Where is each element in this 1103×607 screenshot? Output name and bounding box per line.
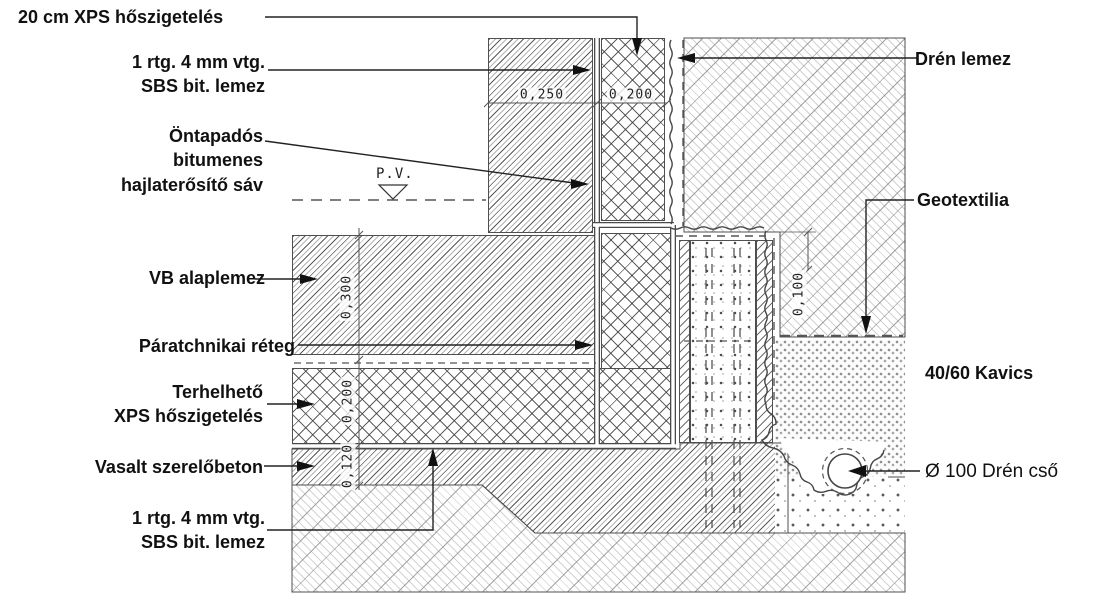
construction-detail-drawing: 20 cm XPS hőszigetelés 1 rtg. 4 mm vtg. … xyxy=(0,0,1103,607)
label-vasalt: Vasalt szerelőbeton xyxy=(43,455,263,479)
drainboard-wavy-line xyxy=(670,40,884,495)
label-sbs-top: 1 rtg. 4 mm vtg. SBS bit. lemez xyxy=(95,50,265,99)
geotextile-dashed-line xyxy=(675,40,903,494)
dim-slab-thickness: 0,300 xyxy=(340,273,355,321)
dim-wall-xps-width: 0,200 xyxy=(607,88,655,103)
label-ontapados: Öntapadós bitumenes hajlaterősítő sáv xyxy=(60,124,263,197)
label-terhelheto: Terhelhető XPS hőszigetelés xyxy=(63,380,263,429)
dim-wall-width: 0,250 xyxy=(518,88,566,103)
leader-arrowheads xyxy=(297,38,871,477)
label-pv-level: P.V. xyxy=(376,166,414,182)
label-geotextilia: Geotextilia xyxy=(917,188,1009,212)
label-dren-cso: Ø 100 Drén cső xyxy=(925,459,1058,485)
dimension-lines xyxy=(355,99,816,490)
dim-dren-offset: 0,100 xyxy=(792,270,807,318)
label-dren-lemez: Drén lemez xyxy=(915,47,1011,71)
rebar-lines xyxy=(684,248,756,528)
dim-szerelobeton-thickness: 0,120 xyxy=(341,442,356,490)
label-sbs-bottom: 1 rtg. 4 mm vtg. SBS bit. lemez xyxy=(95,506,265,555)
label-kavics: 40/60 Kavics xyxy=(925,361,1033,385)
label-paratechnikai: Páratchnikai réteg xyxy=(55,334,295,358)
dim-floor-xps-thickness: 0,200 xyxy=(341,377,356,425)
label-vb-alaplemez: VB alaplemez xyxy=(110,266,265,290)
pv-level-line xyxy=(292,185,486,200)
label-xps-top: 20 cm XPS hőszigetelés xyxy=(18,5,223,29)
